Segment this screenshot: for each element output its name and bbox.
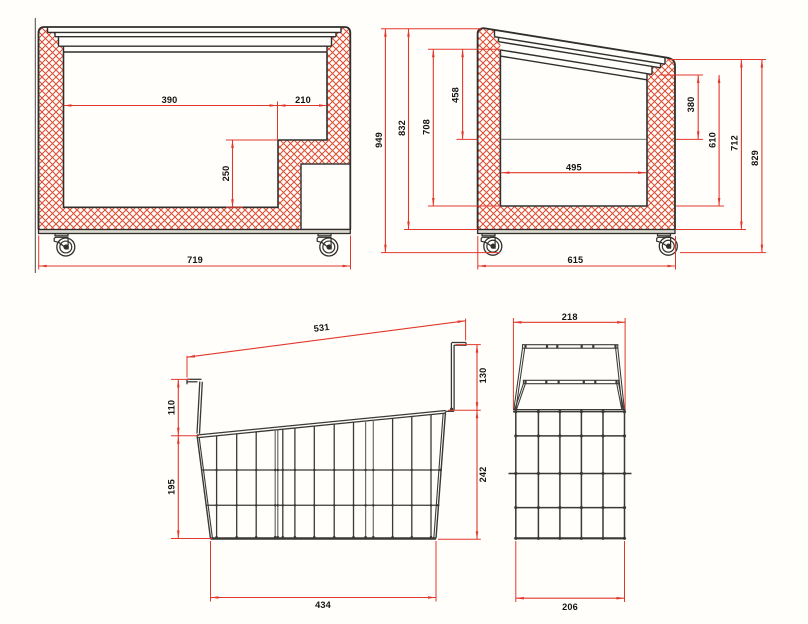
svg-text:195: 195: [167, 479, 177, 495]
svg-text:829: 829: [750, 150, 760, 166]
svg-text:708: 708: [422, 119, 432, 135]
svg-text:250: 250: [221, 166, 231, 182]
svg-text:206: 206: [562, 602, 578, 612]
svg-text:434: 434: [315, 600, 332, 610]
svg-text:832: 832: [397, 120, 407, 136]
svg-text:615: 615: [568, 255, 584, 265]
svg-text:380: 380: [686, 97, 696, 113]
svg-text:531: 531: [313, 322, 330, 334]
svg-text:949: 949: [374, 132, 384, 148]
svg-text:210: 210: [295, 95, 311, 105]
svg-text:712: 712: [730, 135, 740, 151]
svg-text:458: 458: [450, 87, 460, 103]
svg-text:719: 719: [187, 255, 203, 265]
svg-text:110: 110: [167, 400, 177, 415]
svg-text:218: 218: [562, 312, 578, 322]
svg-text:610: 610: [708, 132, 718, 148]
svg-text:130: 130: [478, 368, 488, 384]
svg-text:242: 242: [478, 467, 488, 483]
svg-text:390: 390: [162, 95, 178, 105]
svg-text:495: 495: [566, 162, 582, 172]
